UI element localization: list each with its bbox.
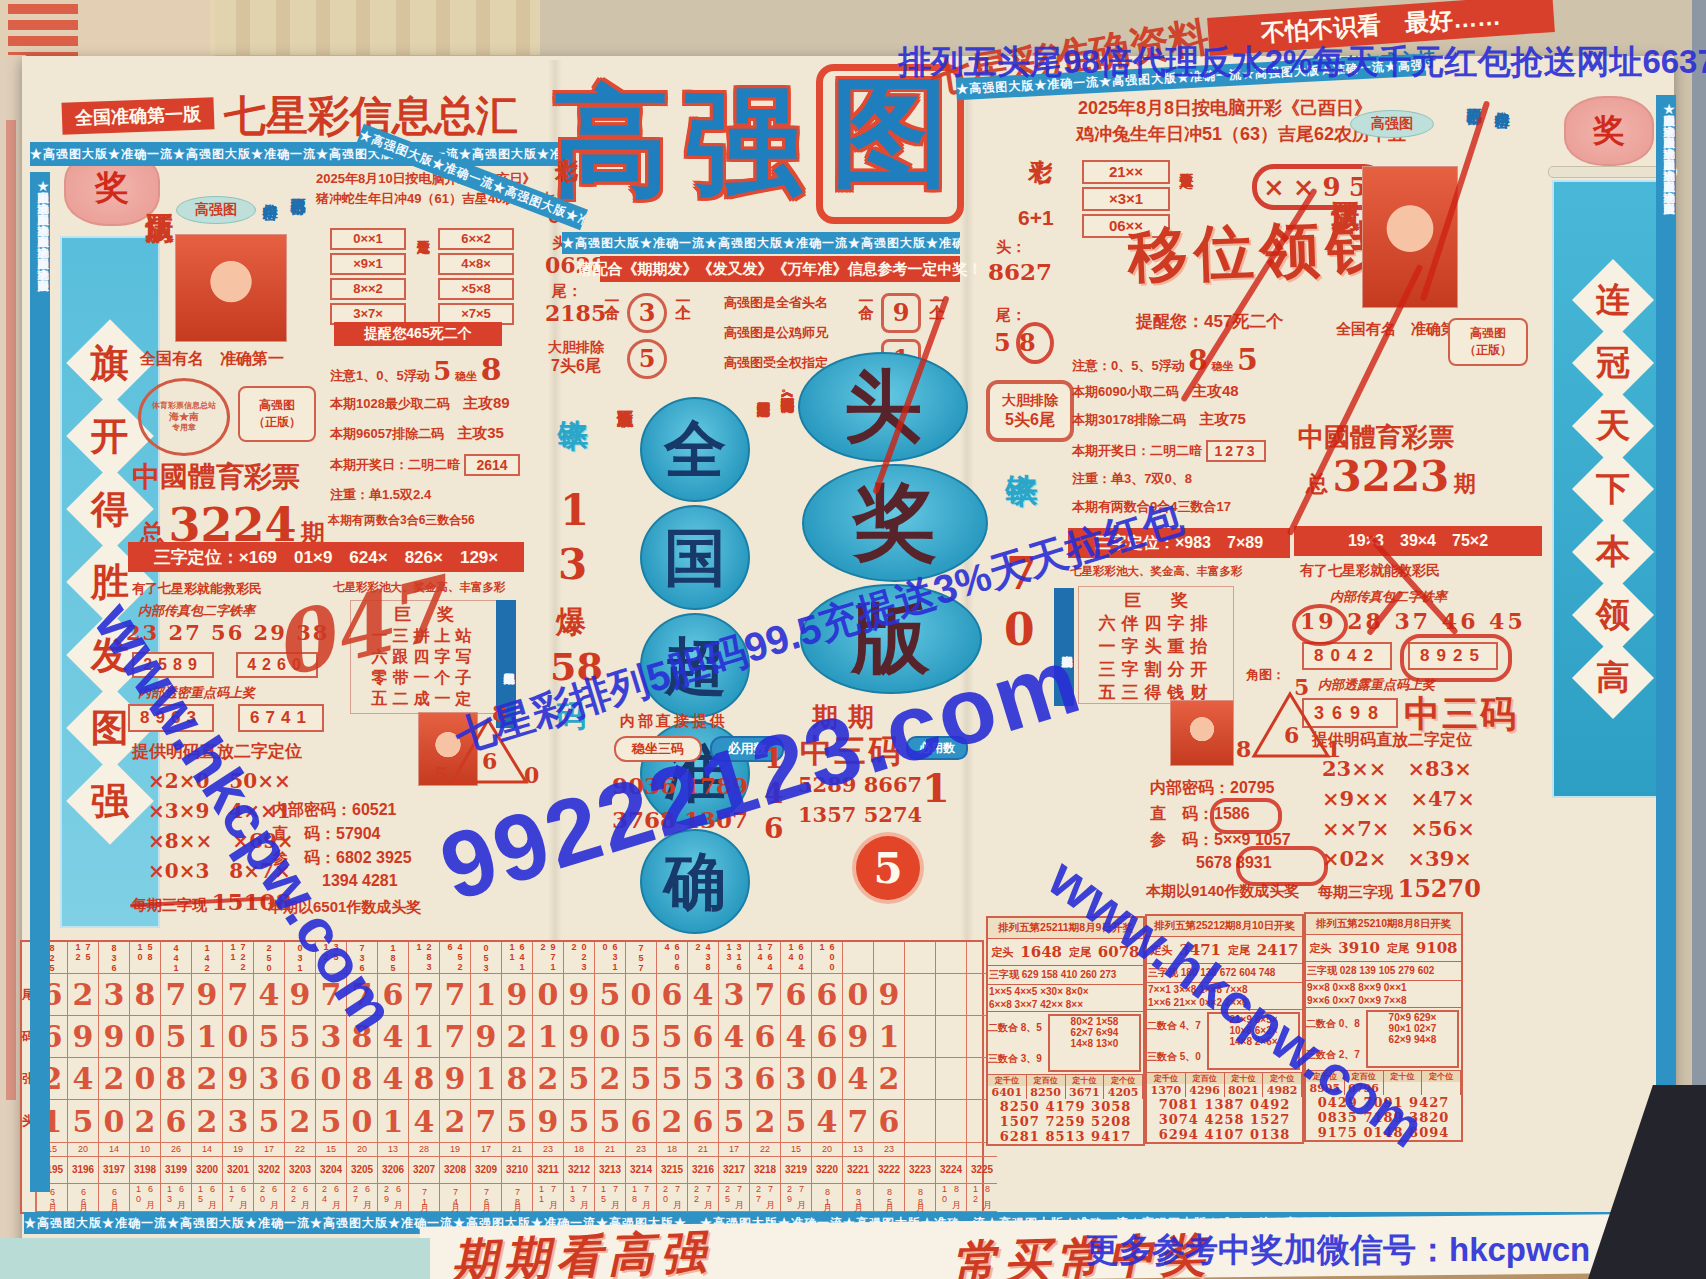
pair-row: ×02× ×39× xyxy=(1322,844,1475,874)
history-date: 6月29 xyxy=(378,1184,408,1212)
history-period: 3202 xyxy=(254,1157,284,1183)
p5-sanzi: 三字现 629 158 410 260 273 xyxy=(988,966,1143,985)
history-digit: 9 xyxy=(533,1100,563,1142)
history-date: 6月8 xyxy=(99,1184,129,1212)
history-period: 3220 xyxy=(812,1157,842,1183)
p5-position-header: 定千位6401 定百位8250 定十位3671 定个位4205 xyxy=(988,1074,1143,1099)
grand-char: 头 xyxy=(844,355,922,460)
history-digit xyxy=(905,1100,935,1142)
left-reminder-bar: 提醒您465死二个 xyxy=(334,322,502,346)
note-text: 本期开奖日：二明二暗 xyxy=(330,456,460,474)
lantern-icon: 奖 xyxy=(1564,96,1654,166)
p5-box-row: 62×9 94×8 xyxy=(1368,1034,1457,1045)
history-count: 14 xyxy=(99,1143,129,1158)
history-digit: 7 xyxy=(161,974,191,1016)
photo-of-lottery-broadsheet: 全国准确第一版 七星彩信息总汇 ★高强图大版★准确一流★高强图大版★准确一流★高… xyxy=(0,0,1706,1279)
center-notice-bar: 请配合《期期发》《发又发》《万年准》信息参考一定中奖！ xyxy=(600,256,960,282)
history-date: 6月13 xyxy=(161,1184,191,1212)
oval-char: 国 xyxy=(664,516,726,600)
history-digit: 9 xyxy=(843,1016,873,1058)
history-digit: 5 xyxy=(626,1058,656,1100)
lantern-char: 奖 xyxy=(95,165,129,211)
history-digit: 2 xyxy=(595,1058,625,1100)
history-digit: 2 xyxy=(502,1016,532,1058)
history-column: 438 2 4 6 5 6 21 3216 7月22 xyxy=(687,942,718,1212)
flag-char: 得 xyxy=(91,484,129,535)
history-date: 8月8 xyxy=(905,1184,935,1212)
history-count: 15 xyxy=(316,1143,346,1158)
history-digit: 6 xyxy=(874,1100,904,1142)
history-column: 600 1 6 6 0 4 20 3220 8月1 xyxy=(811,942,842,1212)
history-digit: 6 xyxy=(285,1058,315,1100)
left-edge-ribbon: ★高强图大版★准确一流★高强图大版★准确一流★高强图大版★准确一流★高强图大版★… xyxy=(30,172,50,1192)
history-period: 3198 xyxy=(130,1157,160,1183)
history-digit: 2 xyxy=(68,974,98,1016)
history-digit: 0 xyxy=(347,1100,377,1142)
combo-digit: 3 xyxy=(627,293,667,333)
history-top-digits: 438 2 xyxy=(688,942,718,974)
history-digit: 6 xyxy=(812,974,842,1016)
history-count: 20 xyxy=(812,1143,842,1158)
flag-char: 旗 xyxy=(91,338,129,389)
brand-oval-text: 高强图 xyxy=(1371,115,1413,133)
history-digit: 1 xyxy=(533,1016,563,1058)
history-column: 604 14 6 4 3 5 15 3219 7月29 xyxy=(780,942,811,1212)
center-burst-char: 爆 xyxy=(556,602,586,643)
history-count: 20 xyxy=(347,1143,377,1158)
p5-head-value: 3910 xyxy=(1338,939,1380,957)
grand-char: 奖 xyxy=(853,466,937,580)
history-period: 3197 xyxy=(99,1157,129,1183)
history-count: 22 xyxy=(285,1143,315,1158)
combo-digit: 9 xyxy=(881,293,921,333)
history-digit: 7 xyxy=(409,974,439,1016)
brand-statement: 高强图是全省头名 xyxy=(724,294,850,312)
jackpot-row: 六伴四字排 xyxy=(1081,612,1231,635)
p5-he3: 三数合 5、0 xyxy=(1147,1050,1205,1064)
history-digit: 3 xyxy=(223,1100,253,1142)
right-note-5: 注重：单3、7双0、8 xyxy=(1072,470,1192,488)
p5-number-row: 1507 7259 5208 xyxy=(988,1114,1143,1129)
p5-tail-value: 9108 xyxy=(1416,939,1458,957)
history-digit: 7 xyxy=(440,1016,470,1058)
pair-row: ×9×× ×47× xyxy=(1322,784,1475,814)
history-digit: 5 xyxy=(595,1100,625,1142)
grid-row: ×9×1 xyxy=(330,253,406,275)
history-count: 19 xyxy=(440,1143,470,1158)
center-tail-label: 尾： xyxy=(552,282,582,301)
right-mingma-title: 提供明码直放二字定位 xyxy=(1312,730,1472,751)
red-circle-mark xyxy=(1400,634,1512,682)
history-digit: 8 xyxy=(161,1058,191,1100)
jackpot-row: 一字头重抬 xyxy=(1081,635,1231,658)
footer-slogan-1: 期期看高强 xyxy=(451,1221,713,1279)
history-date: 6月15 xyxy=(192,1184,222,1212)
note-big-digit: 5 xyxy=(433,356,451,386)
right-inner-code: 内部密码：20795 xyxy=(1150,778,1275,799)
p5-tail-label: 定尾 xyxy=(1069,945,1091,960)
history-count: 23 xyxy=(626,1143,656,1158)
center-iron-digit-1: 1 xyxy=(560,486,589,535)
history-top-digits: 764 14 xyxy=(750,942,780,974)
history-column: 441 7 5 8 6 26 3199 6月13 xyxy=(160,942,191,1212)
star-ribbon: ★高强图大版★准确一流★高强图大版★准确一流★高强图大版★准确一流★高强图大版★… xyxy=(30,142,558,166)
p5-box: 70×9 629× 90×1 02×7 62×9 94×8 xyxy=(1366,1010,1459,1068)
grand-oval-head: 头 xyxy=(798,352,968,462)
stamp-line: 海★南 xyxy=(169,411,199,423)
red-circle-mark xyxy=(1210,798,1282,834)
history-digit xyxy=(905,974,935,1016)
history-count: 18 xyxy=(564,1143,594,1158)
right-note-4: 本期开奖日：二明二暗 1273 xyxy=(1072,440,1266,462)
scroll-char: 连 xyxy=(1596,277,1630,323)
history-period: 3222 xyxy=(874,1157,904,1183)
p5-position-header: 定千位1370 定百位4296 定十位8021 定个位4982 xyxy=(1147,1072,1302,1097)
history-digit: 9 xyxy=(564,1016,594,1058)
history-digit: 8 xyxy=(502,1058,532,1100)
history-columns: 825 6 6 2 1 15 3195 6月3 75 12 2 9 4 5 20… xyxy=(36,942,997,1212)
history-digit: 5 xyxy=(68,1100,98,1142)
history-top-digits xyxy=(936,942,966,974)
history-date: 7月4 xyxy=(440,1184,470,1212)
history-date: 8月5 xyxy=(874,1184,904,1212)
right-secret-line-2: 白小姐密传 xyxy=(1492,100,1511,236)
history-column: 631 0 5 0 2 5 21 3213 7月15 xyxy=(594,942,625,1212)
history-column: 023 2 9 9 5 5 18 3212 7月13 xyxy=(563,942,594,1212)
reminder-text: 提醒您465死二个 xyxy=(364,325,471,343)
note-text: 本期开奖日：二明二暗 xyxy=(1072,442,1202,460)
history-digit: 2 xyxy=(750,1100,780,1142)
authentic-box-line: 高强图 xyxy=(240,397,314,414)
scroll-char: 高 xyxy=(1596,655,1630,701)
history-digit: 3 xyxy=(254,1058,284,1100)
red-circle-mark xyxy=(1016,322,1054,364)
p5-he3: 三数合 3、9 xyxy=(988,1052,1046,1066)
history-digit: 1 xyxy=(471,974,501,1016)
history-date: 6月10 xyxy=(130,1184,160,1212)
left-note-3: 本期96057排除二码 主攻35 xyxy=(330,424,504,443)
history-date: 7月1 xyxy=(409,1184,439,1212)
history-digit: 0 xyxy=(533,974,563,1016)
boxed-digits: 1273 xyxy=(1206,440,1266,462)
history-date: 6月20 xyxy=(254,1184,284,1212)
history-digit: 4 xyxy=(409,1100,439,1142)
p5-he2: 二数合 8、5 xyxy=(988,1021,1046,1035)
note-text: 本期30178排除二码 xyxy=(1072,412,1186,427)
stamp-line: 专用章 xyxy=(172,423,196,433)
issue-number: 3223 xyxy=(1332,452,1449,501)
red-circle-mark xyxy=(1236,846,1328,886)
flag-char: 开 xyxy=(91,411,129,462)
right-lottery-name: 中國體育彩票 xyxy=(1298,420,1454,455)
history-top-digits: 631 0 xyxy=(595,942,625,974)
history-digit: 5 xyxy=(781,1100,811,1142)
history-period: 3209 xyxy=(471,1157,501,1183)
scroll-diamond: 高 xyxy=(1572,637,1654,719)
watermark-top-banner: 排列五头尾98倍代理反水2%每天千元红包抢送网址66373.com xyxy=(898,40,1706,85)
pair-row: 23×× ×83× xyxy=(1322,754,1475,784)
history-digit: 0 xyxy=(626,974,656,1016)
note-attack: 主攻48 xyxy=(1192,382,1239,399)
history-digit: 5 xyxy=(657,1016,687,1058)
history-count: 21 xyxy=(502,1143,532,1158)
history-digit: 9 xyxy=(874,974,904,1016)
history-digit: 4 xyxy=(378,1058,408,1100)
history-top-digits: 722 11 xyxy=(223,942,253,974)
history-digit: 1 xyxy=(471,1058,501,1100)
history-digit: 8 xyxy=(409,1058,439,1100)
history-digit: 9 xyxy=(471,1016,501,1058)
history-count: 23 xyxy=(533,1143,563,1158)
history-count: 20 xyxy=(68,1143,98,1158)
history-period: 3214 xyxy=(626,1157,656,1183)
history-digit: 5 xyxy=(626,1016,656,1058)
p5-title: 排列五第25210期8月8日开奖 xyxy=(1306,914,1461,935)
star-ribbon: ★高强图大版★准确一流★高强图大版★准确一流★高强图大版★准确一流★高强图大版★… xyxy=(562,232,960,254)
history-digit xyxy=(905,1016,935,1058)
ribbon-text: ★高强图大版★准确一流★高强图大版★准确一流★高强图大版★准确一流★高强图大版★… xyxy=(37,172,49,282)
grid-row: ×3×1 xyxy=(1082,187,1170,211)
right-head-number: 8627 xyxy=(988,258,1052,285)
brand-statement: 高强图是公鸡师兄 xyxy=(724,324,850,342)
right-note-1: 注意：0、5、5浮动 8 稳坐 5 xyxy=(1072,342,1258,377)
history-date: 7月18 xyxy=(626,1184,656,1212)
history-count: 22 xyxy=(750,1143,780,1158)
note-big-digit: 8 xyxy=(481,352,502,387)
history-digit: 6 xyxy=(781,974,811,1016)
note-text: 注意：0、5、5浮动 xyxy=(1072,358,1185,373)
history-period: 3218 xyxy=(750,1157,780,1183)
brand-statements: 高强图是全省头名 高强图是公鸡师兄 高强图受全权指定 xyxy=(724,294,850,372)
history-top-digits: 023 2 xyxy=(564,942,594,974)
scroll-char: 本 xyxy=(1596,529,1630,575)
history-digit: 9 xyxy=(99,1016,129,1058)
scroll-char: 领 xyxy=(1596,592,1630,638)
note-text: 稳坐 xyxy=(455,370,477,382)
right-note-3: 本期30178排除二码 主攻75 xyxy=(1072,410,1246,429)
right-fax-box-1: 8042 xyxy=(1302,642,1392,670)
history-period: 3212 xyxy=(564,1157,594,1183)
history-digit: 9 xyxy=(223,1058,253,1100)
history-digit: 6 xyxy=(657,974,687,1016)
history-digit: 5 xyxy=(688,1058,718,1100)
history-count: 15 xyxy=(781,1143,811,1158)
history-digit: 6 xyxy=(750,1058,780,1100)
history-date: 7月13 xyxy=(564,1184,594,1212)
note-text: 注意1、0、5浮动 xyxy=(330,368,430,383)
triangle-left-digit: 8 xyxy=(1236,736,1251,762)
combo-digit: 5 xyxy=(627,339,667,379)
history-digit: 7 xyxy=(223,974,253,1016)
right-edge-ribbon: ★高强图大版★准确一流★高强图大版★准确一流★高强图大版★准确一流★高强图大版★… xyxy=(1656,95,1676,1205)
p5-number-row: 7081 1387 0492 xyxy=(1147,1097,1302,1112)
grid-label: 重要定位 xyxy=(414,230,432,308)
boxed-digits: 2614 xyxy=(464,454,520,476)
history-date: 7月15 xyxy=(595,1184,625,1212)
history-digit: 6 xyxy=(688,1100,718,1142)
history-digit: 2 xyxy=(99,1058,129,1100)
history-digit xyxy=(936,974,966,1016)
left-position-grid: 0××1 ×9×1 8××2 3×7× xyxy=(330,228,406,325)
history-column: 142 9 1 2 2 14 3200 6月15 xyxy=(191,942,222,1212)
history-date: 7月29 xyxy=(781,1184,811,1212)
history-digit: 3 xyxy=(719,974,749,1016)
stamp-line: 体育彩票信息总站 xyxy=(152,401,216,411)
history-period: 3223 xyxy=(905,1157,935,1183)
history-digit xyxy=(936,1016,966,1058)
badge-digit: 5 xyxy=(873,844,902,893)
title-char: 强 xyxy=(684,64,802,224)
history-date: 6月6 xyxy=(68,1184,98,1212)
history-period: 3199 xyxy=(161,1157,191,1183)
history-date: 8月12 xyxy=(967,1184,997,1212)
right-exclude-box: 大胆排除 5头6尾 xyxy=(986,380,1074,442)
history-digit: 5 xyxy=(564,1058,594,1100)
history-date: 6月24 xyxy=(316,1184,346,1212)
right-six-plus-one: 6+1 xyxy=(1018,206,1054,230)
center-iron-rate: 铁率 xyxy=(552,396,593,480)
right-issue-number: 总 3223 期 xyxy=(1306,452,1476,501)
history-period: 3224 xyxy=(936,1157,966,1183)
authentic-box-line: 高强图 xyxy=(1450,325,1526,342)
history-table: 尾 码 张 头 825 6 6 2 1 15 3195 6月3 75 12 2 … xyxy=(20,940,984,1214)
history-column: 283 1 7 1 8 4 28 3207 7月1 xyxy=(408,942,439,1212)
left-leak-box-2: 6741 xyxy=(238,704,324,732)
brand-oval-text: 高强图 xyxy=(195,201,237,219)
left-lottery-name: 中國體育彩票 xyxy=(132,458,300,496)
left-note-5: 注重：单1.5双2.4 xyxy=(330,486,431,504)
p5-box-row: 14×8 13×0 xyxy=(1050,1038,1139,1049)
right-head-label: 头： xyxy=(996,238,1026,257)
left-authentic-label: 认清正版 xyxy=(140,192,178,332)
history-digit xyxy=(936,1100,966,1142)
right-qicai: 七彩 xyxy=(1023,141,1060,206)
history-date: 6月17 xyxy=(223,1184,253,1212)
right-tail-label: 尾： xyxy=(996,306,1026,325)
history-digit: 5 xyxy=(564,1100,594,1142)
history-count: 21 xyxy=(688,1143,718,1158)
history-digit: 5 xyxy=(316,1100,346,1142)
flag-char: 强 xyxy=(91,776,129,827)
right-brand-oval: 高强图 xyxy=(1350,110,1434,138)
history-digit: 6 xyxy=(161,1100,191,1142)
history-top-digits: 75 12 xyxy=(68,942,98,974)
center-provide-line: 内部直接提供 xyxy=(620,712,728,731)
history-digit: 5 xyxy=(254,1100,284,1142)
history-digit: 4 xyxy=(68,1058,98,1100)
history-top-digits: 58 10 xyxy=(130,942,160,974)
history-digit: 1 xyxy=(409,1016,439,1058)
history-digit: 7 xyxy=(471,1100,501,1142)
authentic-box-line: （正版） xyxy=(240,414,314,431)
history-count: 21 xyxy=(595,1143,625,1158)
center-iron-digit-2: 3 xyxy=(558,540,587,589)
history-period: 3219 xyxy=(781,1157,811,1183)
history-period: 3204 xyxy=(316,1157,346,1183)
p5-pattern: 6××8 3××7 42×× 8×× xyxy=(988,998,1143,1011)
history-digit: 5 xyxy=(502,1100,532,1142)
history-digit: 2 xyxy=(657,1100,687,1142)
ribbon-text: ★高强图大版★准确一流★高强图大版★准确一流★高强图大版★准确一流★高强图大版★… xyxy=(562,235,960,252)
right-pairs: 23×× ×83× ×9×× ×47× ××7× ×56× ×02× ×39× xyxy=(1322,754,1475,874)
left-inner-code: 内部密码：60521 xyxy=(272,800,397,821)
watermark-wechat: 更多参考中奖加微信号：hkcpwcn xyxy=(1086,1228,1590,1273)
p5-box-row: 90×1 02×7 xyxy=(1368,1023,1457,1034)
p5-tail-label: 定尾 xyxy=(1228,943,1250,958)
background-teal-paper xyxy=(0,1238,430,1279)
history-digit: 7 xyxy=(440,974,470,1016)
left-brand-oval: 高强图 xyxy=(176,196,256,224)
combo-digits: 3 5 xyxy=(627,293,667,379)
slogan-oval: 国 xyxy=(640,505,750,610)
right-draw-date-1: 2025年8月8日按电脑开彩《己酉日》 xyxy=(1078,96,1372,120)
authentic-box: 高强图 （正版） xyxy=(238,386,316,442)
history-top-digits xyxy=(905,942,935,974)
history-count: 13 xyxy=(843,1143,873,1158)
scroll-char: 天 xyxy=(1596,403,1630,449)
history-digit: 5 xyxy=(285,1016,315,1058)
issue-suffix: 期 xyxy=(1454,471,1476,496)
right-sanzi-bar-2: 19×3 39×4 75×2 xyxy=(1294,526,1542,556)
history-digit: 2 xyxy=(192,1100,222,1142)
history-digit: 5 xyxy=(254,1016,284,1058)
exclude-line: 5头6尾 xyxy=(990,410,1070,431)
history-count: 28 xyxy=(409,1143,439,1158)
history-digit: 7 xyxy=(843,1100,873,1142)
p5-number-row: 6281 8513 9417 xyxy=(988,1129,1143,1144)
p5-pattern: 1××5 4××5 ×30× 8×0× xyxy=(988,985,1143,998)
history-digit: 2 xyxy=(285,1100,315,1142)
p5-tail-value: 2417 xyxy=(1257,941,1299,959)
history-top-digits: 604 14 xyxy=(781,942,811,974)
history-digit: 0 xyxy=(99,1100,129,1142)
p5-pattern: 9××8 0××8 8××9 0××1 xyxy=(1306,981,1461,994)
history-date: 6月22 xyxy=(285,1184,315,1212)
history-period: 3215 xyxy=(657,1157,687,1183)
history-top-digits: 757 xyxy=(626,942,656,974)
history-period: 3225 xyxy=(967,1157,997,1183)
history-period: 3213 xyxy=(595,1157,625,1183)
history-period: 3216 xyxy=(688,1157,718,1183)
history-top-digits: 641 11 xyxy=(502,942,532,974)
history-digit: 7 xyxy=(750,974,780,1016)
history-column: 836 3 9 2 0 14 3197 6月8 xyxy=(98,942,129,1212)
history-digit: 3 xyxy=(719,1058,749,1100)
left-note-6: 本期有两数合3合6三数合56 xyxy=(328,512,523,529)
history-count: 10 xyxy=(130,1143,160,1158)
history-column: 757 0 5 5 6 23 3214 7月18 xyxy=(625,942,656,1212)
history-column: 641 11 9 2 8 5 21 3210 7月8 xyxy=(501,942,532,1212)
history-column: 0 9 4 7 13 3221 8月3 xyxy=(842,942,873,1212)
triangle-top-digit: 5 xyxy=(1294,674,1309,700)
history-digit: 5 xyxy=(161,1016,191,1058)
history-date: 8月10 xyxy=(936,1184,966,1212)
edition-badge: 全国准确第一版 xyxy=(61,97,214,134)
history-column: 75 12 2 9 4 5 20 3196 6月6 xyxy=(67,942,98,1212)
history-date: 7月6 xyxy=(471,1184,501,1212)
p5-he2: 二数合 4、7 xyxy=(1147,1019,1205,1033)
history-digit: 0 xyxy=(812,1058,842,1100)
history-period: 3196 xyxy=(68,1157,98,1183)
history-top-digits: 441 xyxy=(161,942,191,974)
ribbon-text: ★高强图大版★准确一流★高强图大版★准确一流★高强图大版★准确一流★高强图大版★… xyxy=(30,146,558,163)
history-date: 8月1 xyxy=(812,1184,842,1212)
history-count: 14 xyxy=(192,1143,222,1158)
sanzi-text: 三字定位：×169 01×9 624× 826× 129× xyxy=(154,546,498,569)
history-digit: 0 xyxy=(130,1058,160,1100)
history-period: 3203 xyxy=(285,1157,315,1183)
history-digit: 1 xyxy=(192,1016,222,1058)
